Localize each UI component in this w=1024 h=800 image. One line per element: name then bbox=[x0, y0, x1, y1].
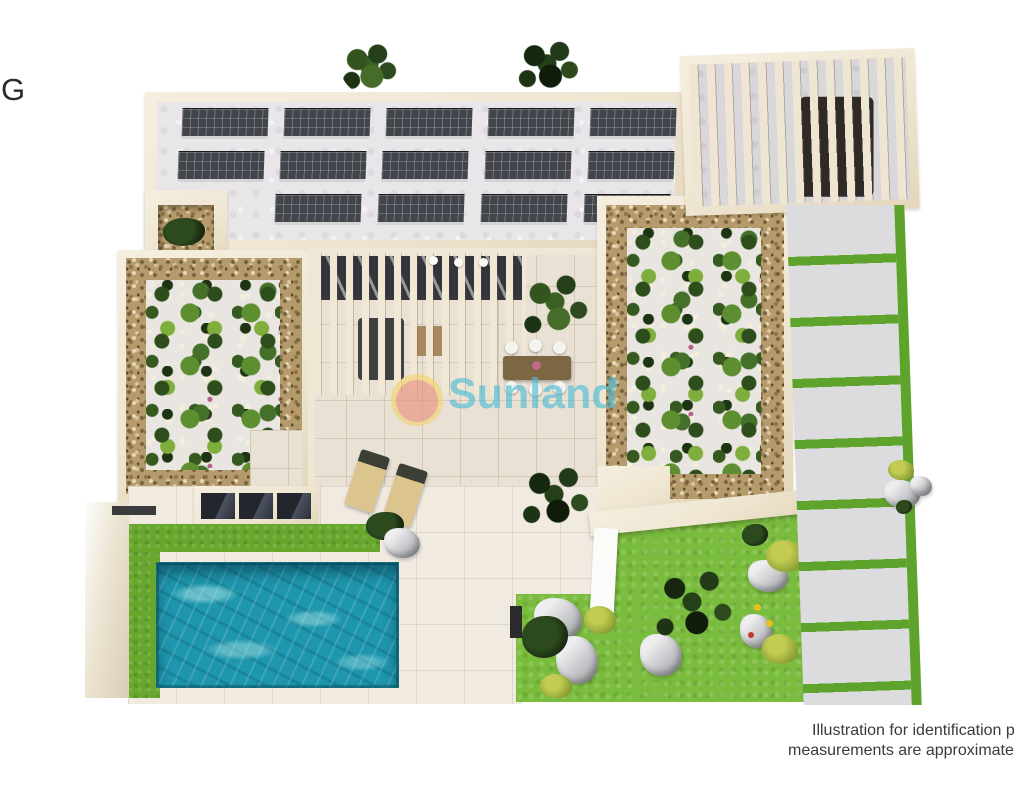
solar-panel bbox=[587, 151, 674, 182]
yellow-flowers bbox=[766, 620, 773, 627]
solar-panel bbox=[274, 194, 361, 225]
solar-panel bbox=[480, 194, 567, 225]
garden-grill bbox=[510, 606, 522, 638]
pergola-slats bbox=[690, 57, 911, 206]
disclaimer-line-1: Illustration for identification p bbox=[812, 721, 1015, 741]
solar-panel bbox=[279, 151, 366, 182]
red-flowers bbox=[748, 632, 754, 638]
glass-pane bbox=[201, 493, 235, 519]
registered-trademark-icon: ® bbox=[610, 376, 620, 391]
carport-pergola bbox=[680, 48, 919, 216]
solar-panel bbox=[177, 151, 264, 182]
garden-walkway-notch bbox=[250, 430, 302, 494]
disclaimer-line-2: measurements are approximate bbox=[788, 741, 1014, 761]
bush bbox=[762, 634, 798, 664]
glass-pane bbox=[239, 493, 273, 519]
watermark-brand-text: Sunland bbox=[448, 372, 618, 416]
solar-panel bbox=[377, 194, 464, 225]
landscape-rock bbox=[384, 528, 420, 558]
grass-strip-top bbox=[128, 524, 380, 552]
solar-panel bbox=[589, 108, 676, 139]
tree bbox=[512, 34, 582, 96]
table-flower-vase bbox=[532, 361, 541, 370]
dining-chair bbox=[505, 341, 518, 354]
driveway-grass-joints bbox=[786, 205, 921, 705]
roof-vent bbox=[112, 506, 156, 515]
bush bbox=[540, 674, 572, 698]
solar-panel bbox=[283, 108, 370, 139]
solar-panel bbox=[385, 108, 472, 139]
right-roof-garden bbox=[597, 196, 793, 508]
garden-bench bbox=[590, 527, 618, 614]
solar-panel bbox=[484, 151, 571, 182]
cropped-left-text: G bbox=[1, 74, 25, 105]
architectural-render-page: G bbox=[0, 0, 1024, 800]
watermark-logo-icon bbox=[391, 374, 443, 426]
tree bbox=[340, 40, 398, 96]
left-roof-garden bbox=[118, 250, 310, 502]
solar-panel bbox=[181, 108, 268, 139]
pendant-lamp bbox=[454, 258, 463, 267]
pendant-lamp bbox=[429, 256, 438, 265]
solar-panel bbox=[487, 108, 574, 139]
bush bbox=[584, 606, 616, 634]
planting-bed bbox=[627, 228, 761, 474]
landscape-rock bbox=[910, 476, 932, 496]
yellow-flowers bbox=[754, 604, 761, 611]
left-exterior-wall bbox=[85, 502, 129, 698]
bush bbox=[888, 460, 914, 480]
swimming-pool bbox=[156, 562, 399, 688]
solar-panel bbox=[381, 151, 468, 182]
glass-door-facade bbox=[194, 486, 318, 526]
pendant-lamp bbox=[479, 258, 488, 267]
glass-pane bbox=[277, 493, 311, 519]
